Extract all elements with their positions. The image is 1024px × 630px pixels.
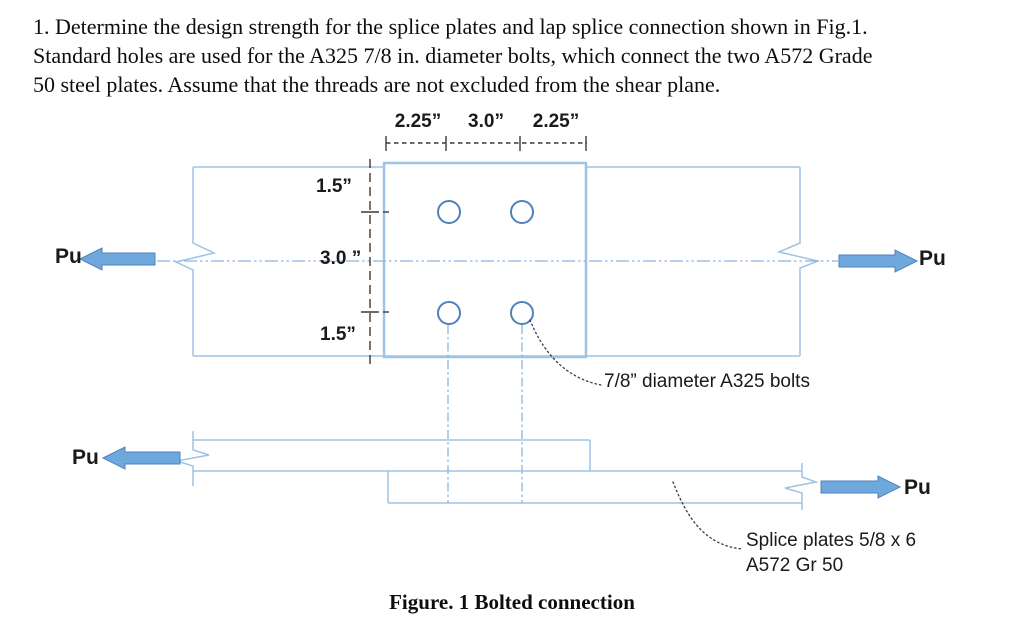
elevation-view-plates	[177, 431, 816, 510]
pu-label-elevation-right: Pu	[904, 476, 931, 500]
dimension-gauge-mid: 3.0 ”	[320, 248, 361, 270]
splice-label-leader	[673, 482, 742, 549]
splice-note-line-1: Splice plates 5/8 x 6	[746, 530, 916, 552]
pu-arrow-elevation-left	[103, 447, 180, 469]
splice-plate-outline	[384, 163, 586, 357]
pu-label-elevation-left: Pu	[72, 446, 99, 470]
dimension-top-mid: 3.0”	[456, 111, 516, 133]
pu-label-plan-right: Pu	[919, 247, 946, 271]
pu-arrow-plan-right	[839, 250, 917, 272]
bolt-hole-bottom-left	[438, 302, 460, 324]
dimension-top-left: 2.25”	[388, 111, 448, 133]
dimension-lines	[361, 136, 587, 368]
pu-label-plan-left: Pu	[55, 245, 82, 269]
pu-arrow-elevation-right	[821, 476, 900, 498]
bolt-hole-top-right	[511, 201, 533, 223]
problem-page: 1. Determine the design strength for the…	[0, 0, 1024, 630]
pu-arrow-plan-left	[80, 248, 155, 270]
dimension-edge-bottom: 1.5”	[320, 324, 356, 346]
bolt-holes	[438, 201, 533, 324]
dimension-edge-top: 1.5”	[316, 176, 352, 198]
leader-lines	[530, 320, 742, 549]
bolts-note: 7/8” diameter A325 bolts	[604, 371, 810, 393]
figure-caption: Figure. 1 Bolted connection	[0, 590, 1024, 615]
dimension-top-right: 2.25”	[526, 111, 586, 133]
bolt-label-leader	[530, 320, 601, 385]
splice-note-line-2: A572 Gr 50	[746, 555, 843, 577]
bolt-hole-top-left	[438, 201, 460, 223]
